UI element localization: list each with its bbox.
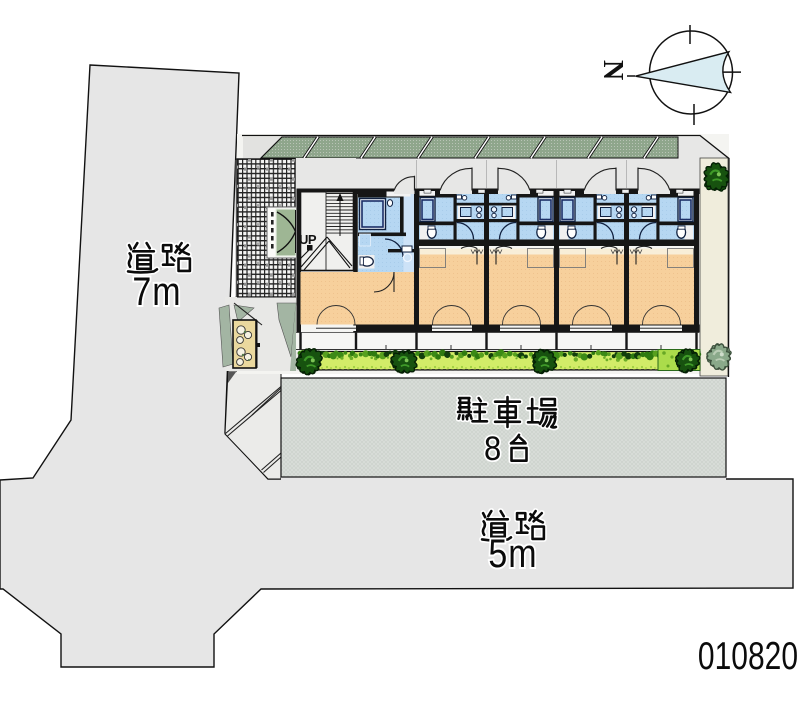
svg-text:UP: UP xyxy=(299,232,317,247)
svg-text:7m: 7m xyxy=(132,270,181,314)
svg-text:8: 8 xyxy=(484,430,501,468)
svg-text:010820: 010820 xyxy=(698,635,798,678)
svg-text:N: N xyxy=(597,60,628,80)
svg-text:5m: 5m xyxy=(488,532,537,576)
